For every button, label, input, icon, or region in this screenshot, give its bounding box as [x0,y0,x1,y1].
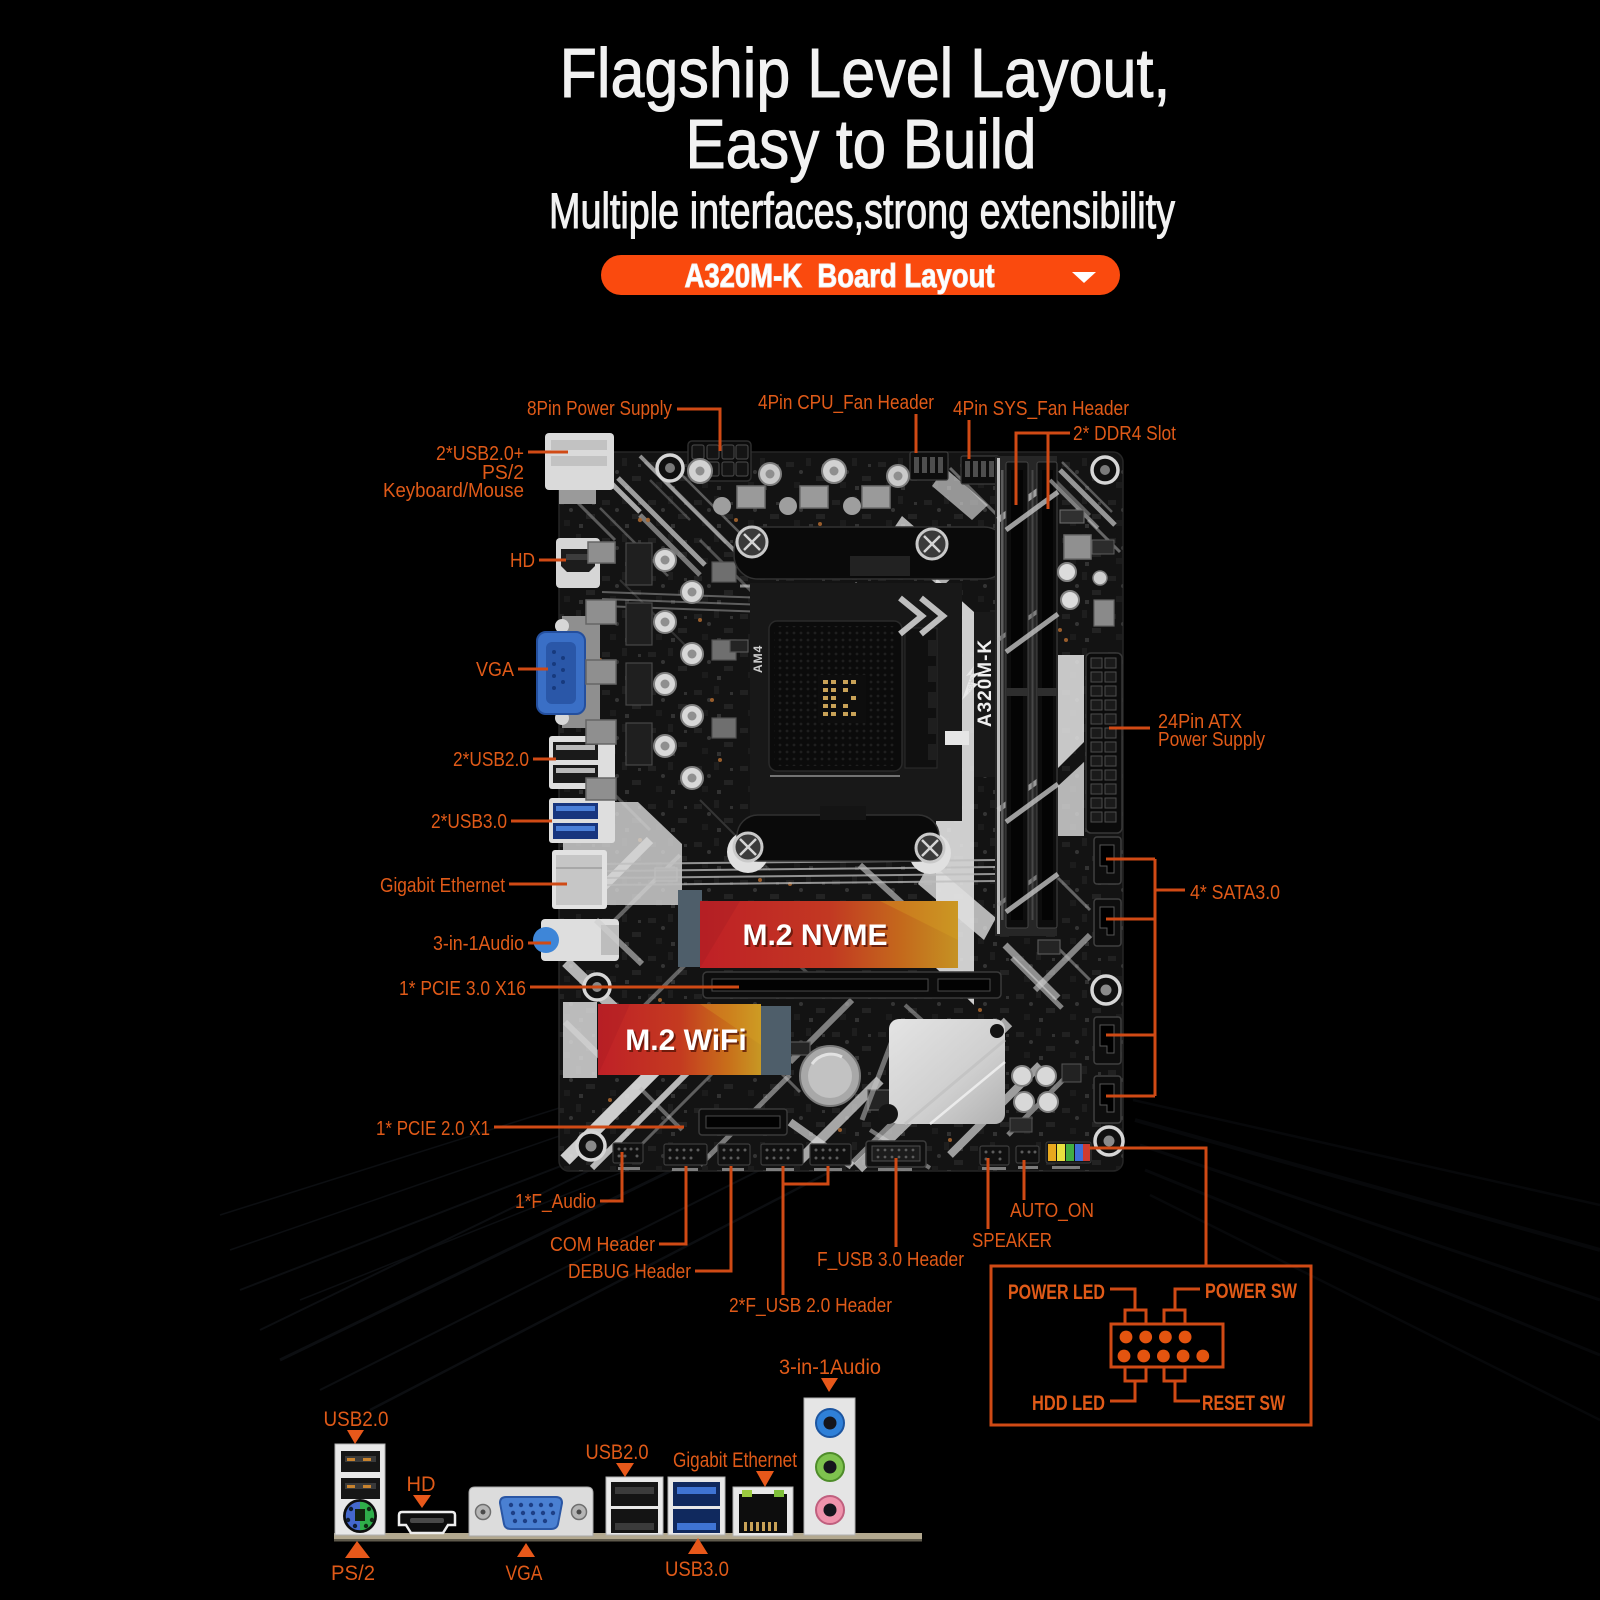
svg-text:1* PCIE 3.0 X16: 1* PCIE 3.0 X16 [399,978,526,1000]
svg-text:AUTO_ON: AUTO_ON [1010,1200,1094,1222]
svg-text:2*F_USB 2.0 Header: 2*F_USB 2.0 Header [729,1295,892,1317]
svg-text:3-in-1Audio: 3-in-1Audio [433,933,524,955]
svg-text:USB2.0: USB2.0 [324,1408,389,1431]
svg-text:HD: HD [407,1473,436,1496]
svg-text:USB2.0: USB2.0 [586,1441,649,1464]
svg-text:2*USB3.0: 2*USB3.0 [431,811,507,833]
svg-text:HDD LED: HDD LED [1032,1392,1105,1415]
svg-text:VGA: VGA [476,659,515,681]
svg-text:Gigabit Ethernet: Gigabit Ethernet [380,875,505,897]
svg-text:PS/2: PS/2 [331,1562,375,1585]
svg-text:3-in-1Audio: 3-in-1Audio [779,1356,881,1379]
svg-text:2* DDR4 Slot: 2* DDR4 Slot [1073,423,1176,445]
svg-text:SPEAKER: SPEAKER [972,1230,1052,1252]
svg-text:POWER LED: POWER LED [1008,1281,1105,1304]
svg-text:1*F_Audio: 1*F_Audio [515,1191,596,1213]
svg-text:Power Supply: Power Supply [1158,729,1265,751]
svg-text:VGA: VGA [506,1562,543,1585]
svg-text:DEBUG Header: DEBUG Header [568,1261,691,1283]
svg-text:Gigabit Ethernet: Gigabit Ethernet [673,1449,797,1472]
svg-text:A320M-K: A320M-K [975,639,996,727]
svg-text:COM Header: COM Header [550,1234,655,1256]
svg-text:JINGSHA: JINGSHA [969,677,975,703]
svg-text:M.2 WiFi: M.2 WiFi [625,1024,746,1057]
svg-text:HD: HD [510,550,535,572]
svg-text:RESET SW: RESET SW [1202,1392,1285,1415]
svg-text:Keyboard/Mouse: Keyboard/Mouse [383,480,524,502]
svg-text:1* PCIE 2.0 X1: 1* PCIE 2.0 X1 [376,1118,490,1140]
svg-text:POWER SW: POWER SW [1205,1280,1297,1303]
svg-text:4Pin SYS_Fan Header: 4Pin SYS_Fan Header [953,398,1129,420]
svg-text:4* SATA3.0: 4* SATA3.0 [1190,882,1280,904]
svg-text:USB3.0: USB3.0 [665,1558,729,1581]
svg-text:F_USB 3.0 Header: F_USB 3.0 Header [817,1249,964,1271]
svg-text:4Pin CPU_Fan Header: 4Pin CPU_Fan Header [758,392,934,414]
svg-text:AM4: AM4 [751,645,765,673]
svg-text:8Pin Power Supply: 8Pin Power Supply [527,398,672,420]
svg-text:M.2 NVME: M.2 NVME [742,919,887,952]
svg-text:2*USB2.0: 2*USB2.0 [453,749,529,771]
